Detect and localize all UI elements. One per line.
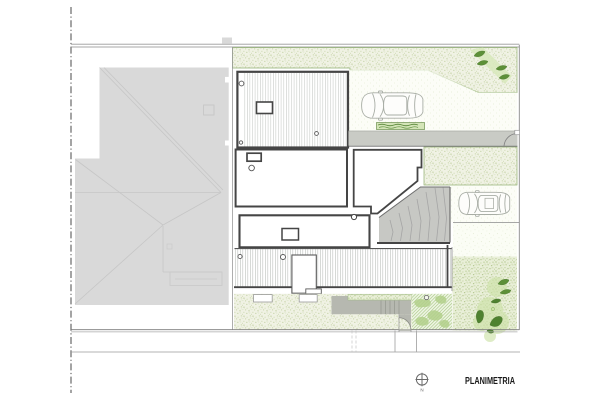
svg-text:N: N (420, 388, 423, 393)
svg-text:PLANIMETRIA: PLANIMETRIA (465, 376, 515, 387)
